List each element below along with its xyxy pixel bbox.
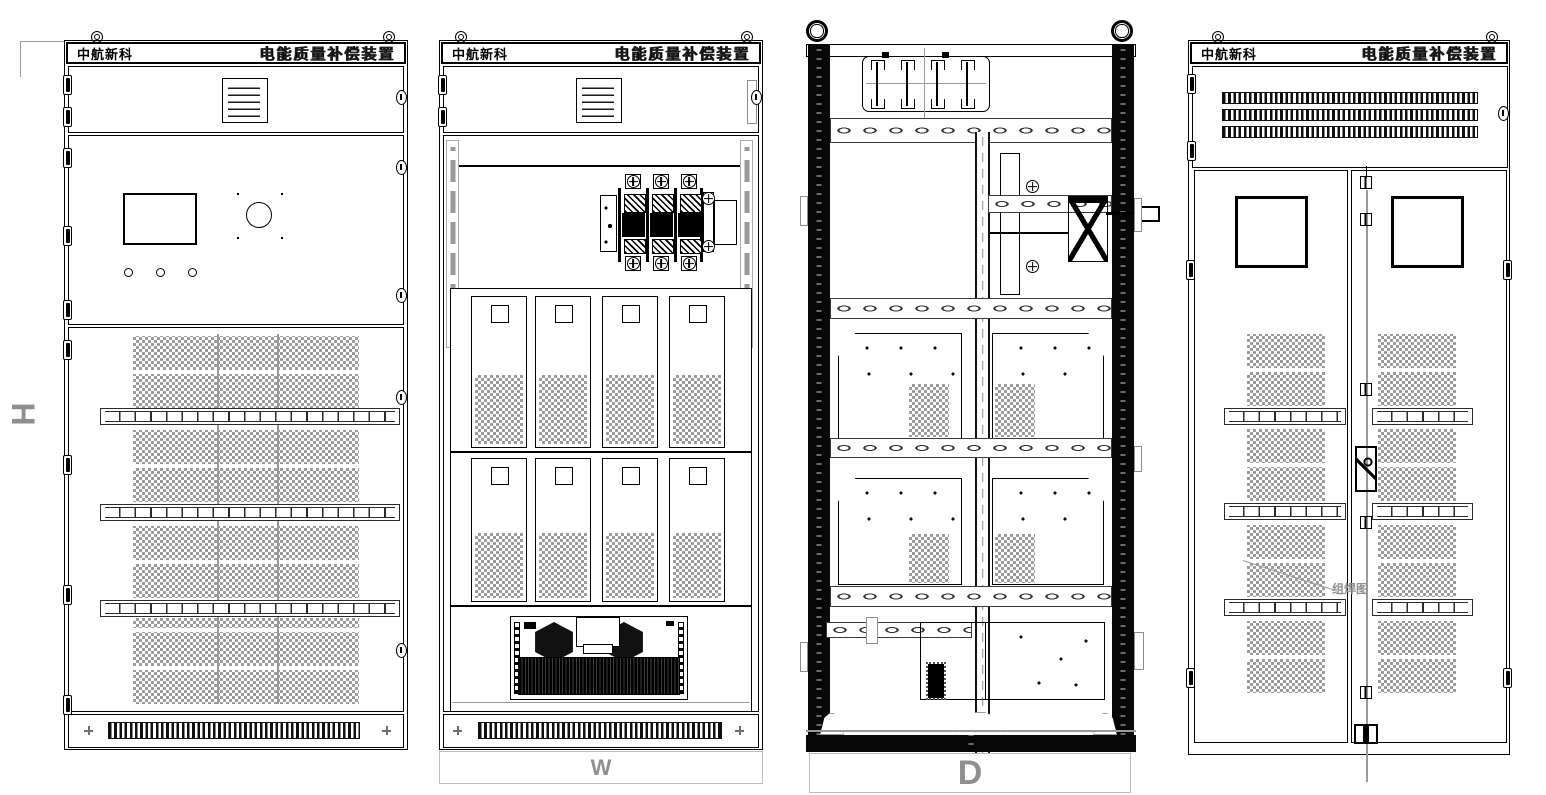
circuit-breaker: [596, 172, 744, 282]
rod-guide-clip: [1360, 516, 1372, 529]
module-vent-mesh: [673, 533, 721, 598]
door-hinge-tab: [800, 642, 808, 672]
lock-icon: [396, 90, 407, 105]
module-connector: [491, 305, 509, 323]
rear-exterior-view: 中航新科 电能质量补偿装置: [1188, 40, 1510, 755]
breaker-terminal: [652, 239, 674, 254]
door-hinge-tab: [1134, 632, 1144, 670]
rod-guide-clip: [1360, 213, 1372, 226]
module-vent-mesh: [606, 375, 654, 444]
door-hinge-tab: [1134, 198, 1142, 232]
product-title: 电能质量补偿装置: [259, 43, 395, 64]
dimension-box-w: W: [439, 751, 763, 784]
louver-strip: [100, 504, 400, 521]
vent-mesh: [1247, 426, 1325, 501]
mounting-rail: [830, 118, 1112, 143]
module-vent-mesh: [475, 533, 523, 598]
component-block: [928, 664, 944, 698]
anchor-mark-icon: [453, 726, 462, 735]
breaker-terminal: [624, 239, 646, 254]
breaker-pole-body: [650, 213, 673, 237]
door-hinge-tab: [1134, 446, 1142, 472]
vent-mesh: [909, 534, 949, 583]
vent-mesh: [995, 384, 1035, 437]
dimension-label-w: W: [591, 755, 612, 781]
power-module: [535, 296, 591, 448]
mounting-rail: [830, 438, 1112, 458]
breaker-bus-bar: [646, 188, 649, 262]
hinge-icon: [63, 585, 72, 605]
module-connector: [689, 305, 707, 323]
busbar-clamp: [901, 60, 915, 70]
mounting-rail: [830, 298, 1112, 319]
lifting-eye-icon: [806, 20, 828, 42]
bolt-icon: [683, 257, 696, 270]
lock-icon: [751, 90, 762, 105]
vent-mesh: [1378, 330, 1456, 406]
weld-annotation: 组焊图: [1332, 580, 1368, 597]
busbar-clamp: [871, 60, 885, 70]
module-side-plate: [838, 333, 962, 439]
busbar-stub: [882, 52, 889, 58]
hinge-icon: [1186, 260, 1195, 280]
louver-strip: [100, 600, 400, 617]
lock-icon: [396, 160, 407, 175]
base-frame: [806, 735, 1136, 752]
indicator-light: [156, 268, 165, 277]
nameplate: [576, 78, 622, 123]
anchor-mark-icon: [84, 726, 93, 735]
rod-guide-clip: [1360, 176, 1372, 189]
hmi-display: [123, 193, 197, 245]
breaker-terminal: [680, 194, 702, 213]
frame-post: [1112, 44, 1134, 751]
vent-mesh: [133, 426, 359, 502]
vent-mesh: [133, 522, 359, 598]
cad-drawing-canvas: H 中航新科 电能质量补偿装置: [0, 0, 1546, 795]
handle-shaft: [1106, 212, 1136, 215]
base-plate: [920, 622, 1105, 700]
module-vent-mesh: [475, 375, 523, 444]
door-window: [1391, 196, 1464, 268]
vent-grille: [1222, 92, 1478, 104]
louver-strip: [1224, 503, 1346, 520]
busbar-clamp: [961, 99, 975, 109]
product-title: 电能质量补偿装置: [614, 43, 750, 64]
door-hinge-tab: [800, 196, 808, 226]
hinge-icon: [438, 107, 447, 127]
hinge-icon: [1503, 668, 1512, 688]
cabinet-header-bar: 中航新科 电能质量补偿装置: [66, 42, 406, 64]
bolt-icon: [627, 257, 640, 270]
bolt-icon: [1026, 260, 1039, 273]
rail-clip: [866, 617, 878, 644]
door-window: [1235, 196, 1308, 268]
power-module: [602, 458, 658, 602]
hinge-icon: [1503, 260, 1512, 280]
vent-mesh: [1247, 617, 1325, 693]
vent-grille: [1222, 109, 1478, 121]
base-line: [806, 730, 1136, 732]
vent-grille: [108, 722, 360, 739]
rod-guide-clip: [1360, 686, 1372, 699]
breaker-link: [990, 232, 1068, 234]
module-connector: [555, 305, 573, 323]
front-exterior-view: 中航新科 电能质量补偿装置: [64, 40, 408, 750]
rack-label: [666, 621, 674, 626]
hinge-icon: [63, 300, 72, 320]
dimension-label-d: D: [958, 754, 983, 793]
rack-label: [524, 622, 536, 629]
upper-door: [68, 135, 404, 325]
busbar-stub: [942, 52, 949, 58]
nameplate: [222, 78, 268, 123]
busbar-clamp: [901, 99, 915, 109]
dim-ext-line-h-top: [20, 41, 65, 42]
breaker-bus-bar: [618, 188, 621, 262]
cabinet-header-bar: 中航新科 电能质量补偿装置: [441, 42, 761, 64]
breaker-pole-body: [678, 213, 701, 237]
door-lock-handle: [1355, 446, 1377, 492]
indicator-light: [188, 268, 197, 277]
rack-unit: [510, 616, 688, 700]
module-side-plate: [992, 333, 1104, 439]
power-module: [602, 296, 658, 448]
lock-icon: [396, 390, 407, 405]
vent-mesh: [909, 384, 949, 437]
louver-strip: [1372, 408, 1473, 425]
frame-crossbar: [452, 165, 750, 167]
hinge-icon: [63, 695, 72, 715]
module-vent-mesh: [606, 533, 654, 598]
busbar-clamp: [931, 99, 945, 109]
dimension-label-h: H: [5, 393, 41, 435]
anchor-mark-icon: [382, 726, 391, 735]
module-vent-mesh: [539, 375, 587, 444]
indicator-light: [124, 268, 133, 277]
breaker-side-plate: [714, 200, 737, 245]
louver-strip: [1372, 599, 1473, 616]
power-module: [535, 458, 591, 602]
vent-mesh: [1378, 617, 1456, 693]
side-section-view: [800, 14, 1140, 759]
module-side-plate: [992, 478, 1104, 585]
breaker-side-plate: [600, 195, 617, 252]
module-connector: [622, 305, 640, 323]
heatsink-fins: [518, 657, 680, 695]
breaker-terminal: [680, 239, 702, 254]
busbar-clamp: [931, 60, 945, 70]
rack-center-box: [583, 644, 613, 654]
power-module: [471, 458, 527, 602]
module-side-plate: [838, 478, 962, 585]
hinge-icon: [1187, 141, 1196, 161]
busbar-assembly: [862, 56, 990, 112]
vent-grille: [1222, 126, 1478, 138]
lock-icon: [396, 643, 407, 658]
vent-mesh: [1247, 330, 1325, 406]
module-vent-mesh: [673, 375, 721, 444]
rod-guide-clip: [1360, 383, 1372, 396]
louver-strip: [100, 408, 400, 425]
brand-label: 中航新科: [1201, 44, 1257, 63]
module-connector: [555, 467, 573, 485]
breaker-mechanism: [1068, 196, 1108, 262]
vent-mesh: [133, 618, 359, 704]
power-module: [669, 296, 725, 448]
hinge-icon: [1187, 74, 1196, 94]
module-vent-mesh: [539, 533, 587, 598]
module-connector: [622, 467, 640, 485]
busbar-clamp: [871, 99, 885, 109]
louver-strip: [1224, 599, 1346, 616]
lifting-eye-icon: [1111, 20, 1133, 42]
corner-gusset: [956, 712, 1005, 736]
vent-mesh: [1378, 426, 1456, 501]
vent-mesh: [995, 534, 1035, 583]
lock-icon: [1498, 106, 1509, 121]
louver-strip: [1372, 503, 1473, 520]
power-module: [669, 458, 725, 602]
vent-mesh: [1247, 521, 1325, 597]
hinge-icon: [63, 148, 72, 168]
module-connector: [689, 467, 707, 485]
vent-grille: [478, 722, 722, 739]
hinge-icon: [63, 226, 72, 246]
rack-center-box: [576, 617, 620, 647]
front-interior-view: 中航新科 电能质量补偿装置: [439, 40, 763, 750]
brand-label: 中航新科: [452, 44, 508, 63]
bolt-icon: [655, 257, 668, 270]
hinge-icon: [63, 340, 72, 360]
module-connector: [491, 467, 509, 485]
busbar-centerline: [866, 83, 986, 84]
dimension-box-d: D: [809, 753, 1131, 793]
breaker-bus-bar: [674, 188, 677, 262]
busbar-riser: [1000, 153, 1020, 295]
hinge-icon: [63, 107, 72, 127]
bolt-icon: [627, 175, 640, 188]
hinge-icon: [1186, 668, 1195, 688]
vent-mesh: [1378, 521, 1456, 597]
vent-mesh: [133, 334, 359, 408]
control-knob: [246, 202, 272, 228]
brand-label: 中航新科: [77, 44, 133, 63]
power-module: [471, 296, 527, 448]
cabinet-header-bar: 中航新科 电能质量补偿装置: [1190, 42, 1508, 64]
dim-line-h: [20, 41, 21, 77]
breaker-pole-body: [622, 213, 645, 237]
bolt-icon: [655, 175, 668, 188]
compartment-line: [452, 702, 750, 703]
rod-bottom-lock: [1354, 724, 1378, 744]
frame-post: [808, 44, 830, 751]
base-plate-divider: [985, 623, 986, 699]
mounting-rail: [830, 586, 1112, 607]
bolt-icon: [683, 175, 696, 188]
hinge-icon: [438, 75, 447, 95]
louver-strip: [1224, 408, 1346, 425]
breaker-terminal: [624, 194, 646, 213]
lock-icon: [396, 288, 407, 303]
busbar-clamp: [961, 60, 975, 70]
breaker-terminal: [652, 194, 674, 213]
hinge-icon: [63, 455, 72, 475]
bolt-icon: [1026, 180, 1039, 193]
hinge-icon: [63, 75, 72, 95]
product-title: 电能质量补偿装置: [1361, 43, 1497, 64]
anchor-mark-icon: [735, 726, 744, 735]
